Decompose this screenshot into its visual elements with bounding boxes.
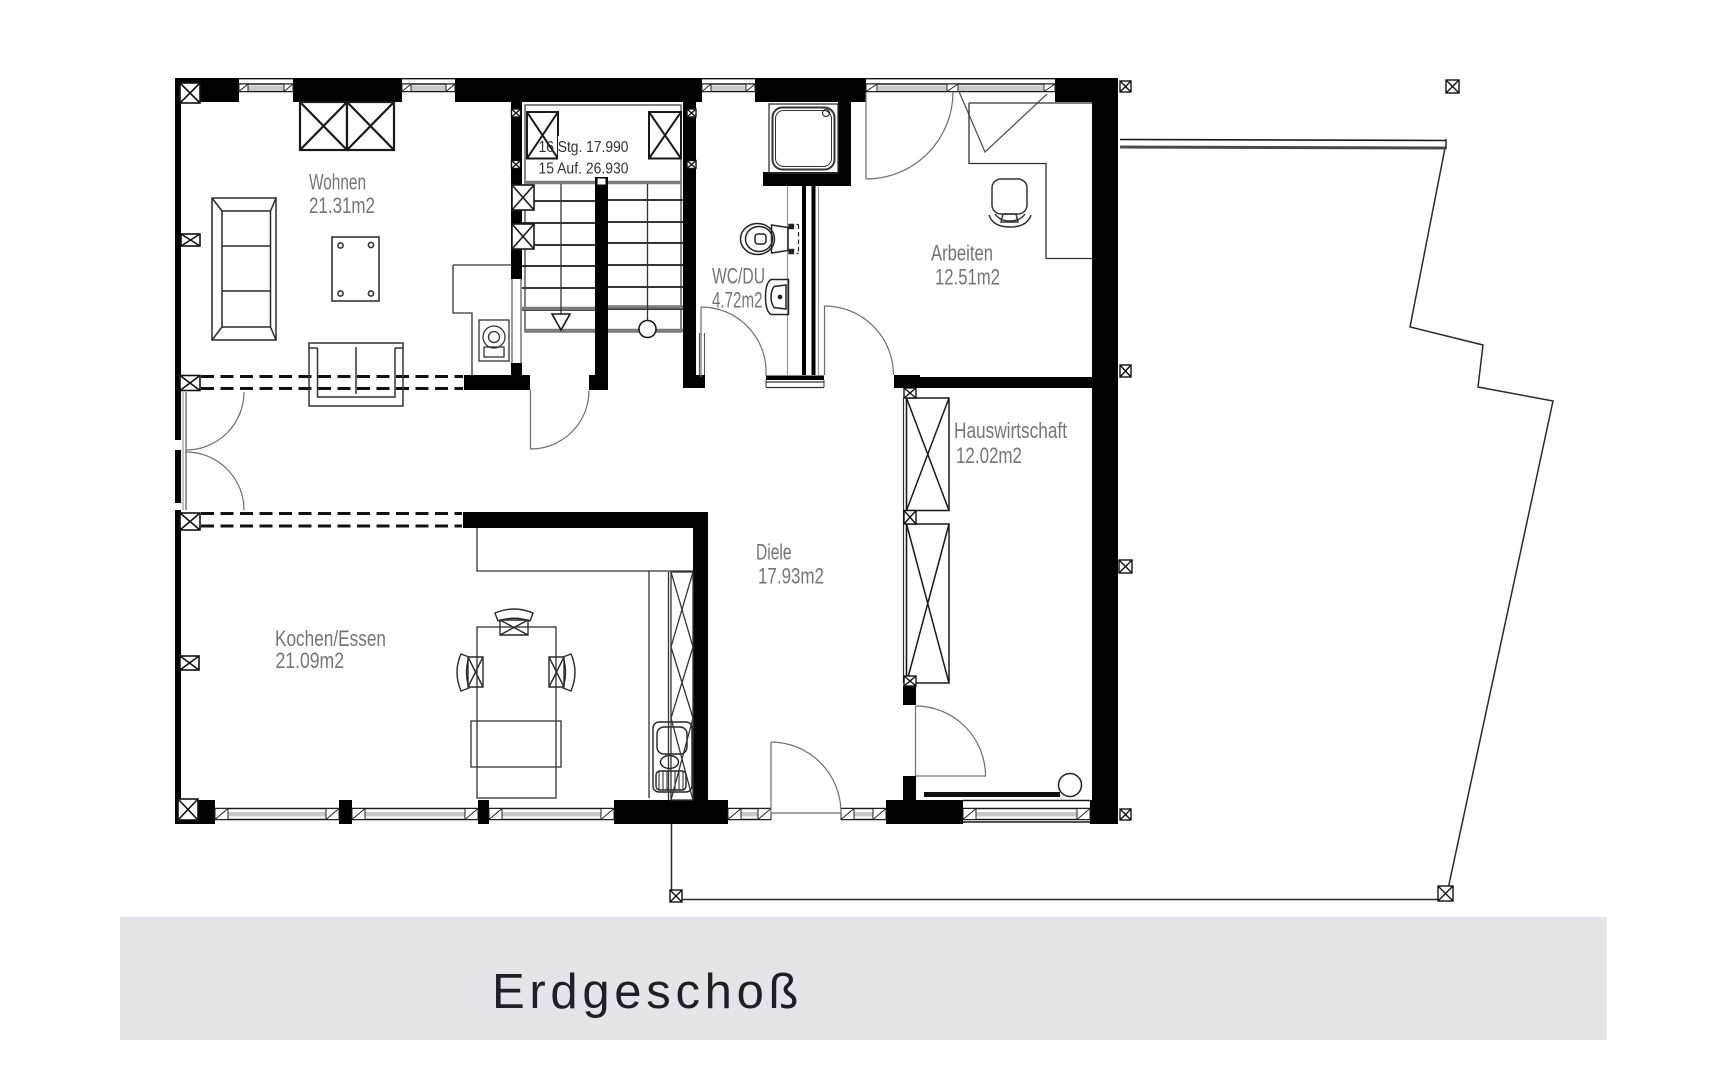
svg-text:17.93m2: 17.93m2 [758,564,824,589]
svg-text:Hauswirtschaft: Hauswirtschaft [954,418,1067,443]
svg-text:12.51m2: 12.51m2 [935,265,1000,290]
svg-text:4.72m2: 4.72m2 [712,288,763,313]
svg-text:WC/DU: WC/DU [712,264,765,289]
svg-text:16 Stg. 17.990: 16 Stg. 17.990 [539,139,629,156]
svg-text:Wohnen: Wohnen [309,170,366,195]
svg-text:Erdgeschoß: Erdgeschoß [492,965,803,1019]
svg-text:Diele: Diele [756,540,792,565]
svg-text:Arbeiten: Arbeiten [931,241,993,266]
svg-text:21.09m2: 21.09m2 [276,648,345,673]
svg-text:12.02m2: 12.02m2 [956,443,1022,468]
svg-text:15 Auf. 26.930: 15 Auf. 26.930 [539,160,629,177]
svg-text:21.31m2: 21.31m2 [309,193,375,218]
